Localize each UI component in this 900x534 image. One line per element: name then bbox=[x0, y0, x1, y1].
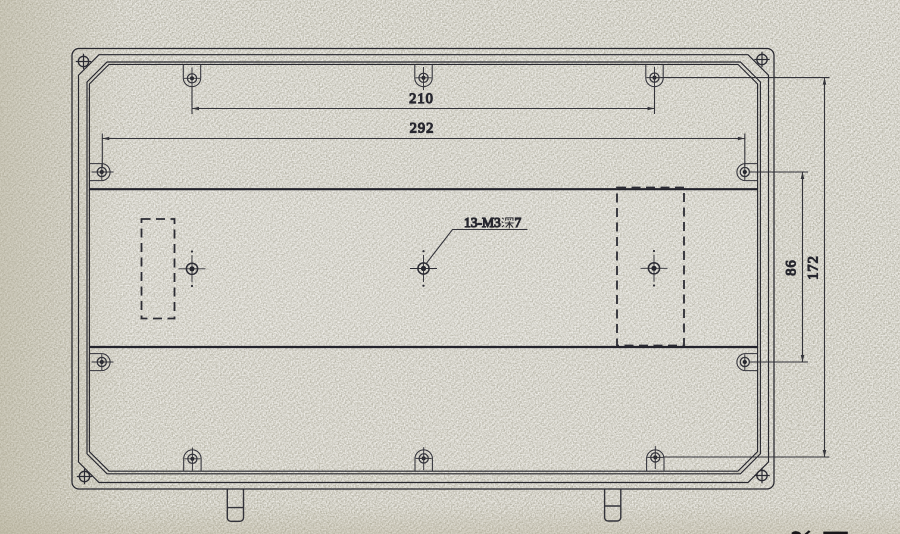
svg-text:13-M3: 13-M3 bbox=[464, 215, 501, 230]
svg-text:172: 172 bbox=[806, 255, 822, 280]
svg-text:86: 86 bbox=[784, 259, 800, 276]
svg-text:292: 292 bbox=[410, 121, 435, 137]
svg-text:7: 7 bbox=[515, 215, 522, 230]
svg-text:210: 210 bbox=[409, 91, 434, 107]
